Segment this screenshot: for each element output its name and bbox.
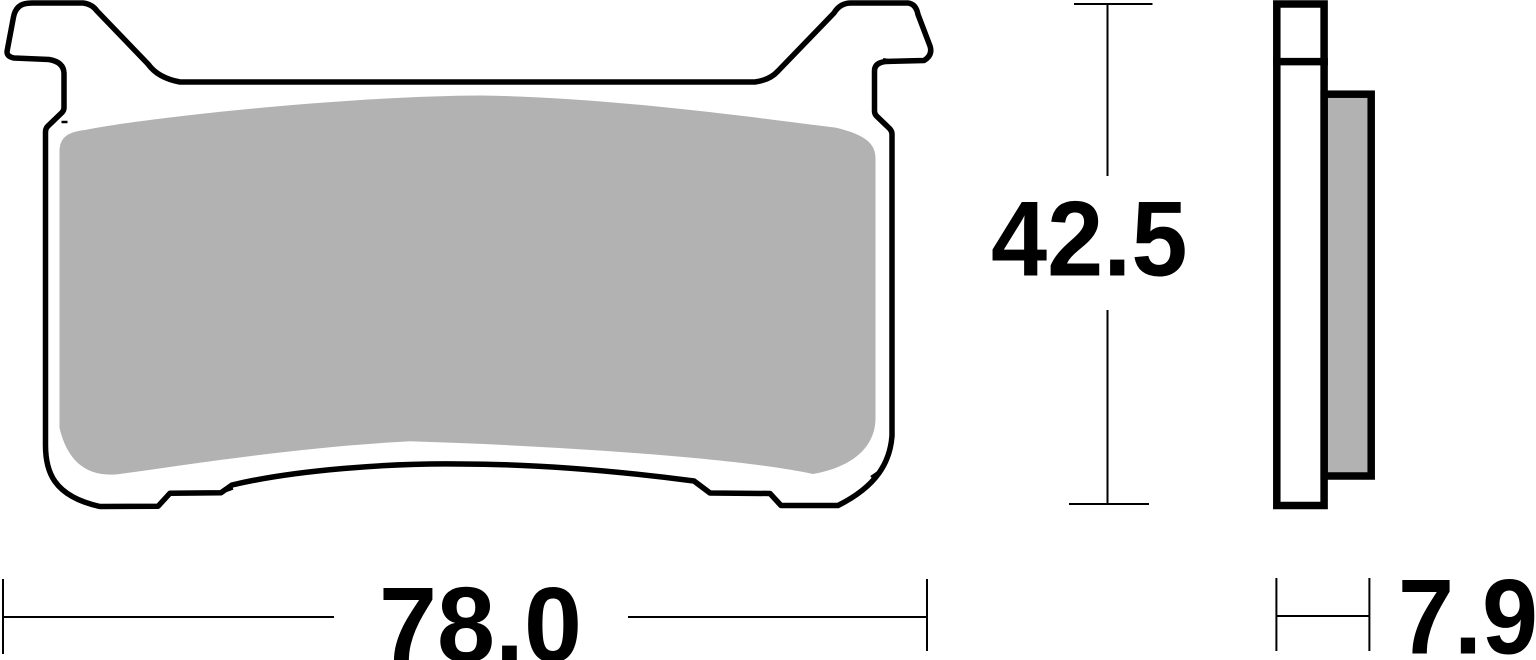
svg-text:78.0: 78.0 [379,565,582,660]
svg-text:7.9: 7.9 [1398,557,1536,660]
svg-text:42.5: 42.5 [991,179,1188,299]
